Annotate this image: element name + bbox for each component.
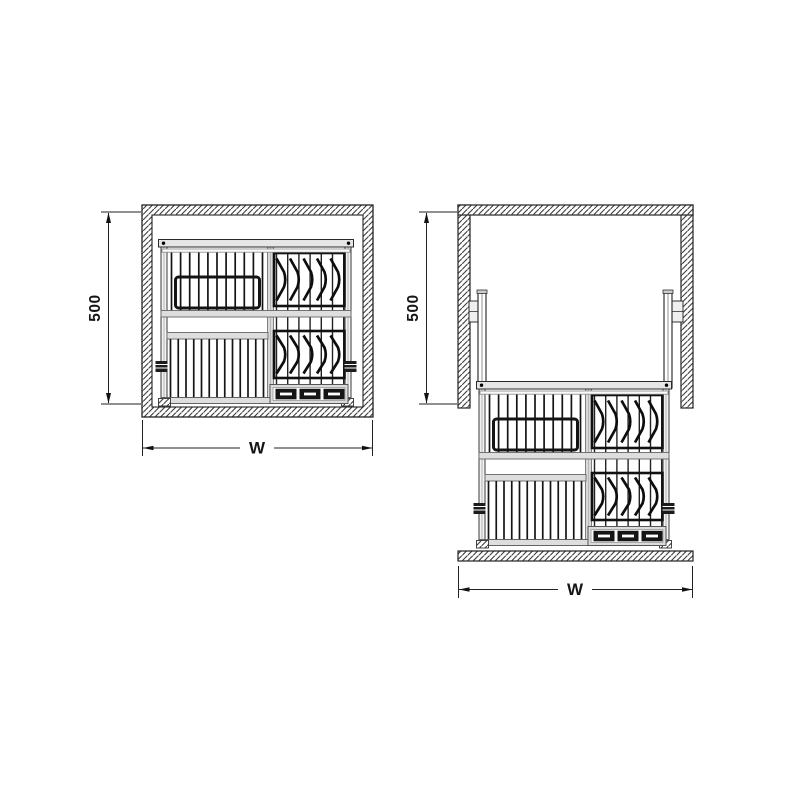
arrowhead-left — [143, 446, 154, 451]
arrowhead-down — [424, 393, 429, 404]
arrowhead-up — [106, 213, 111, 224]
view-closed-position: 500 W — [87, 205, 373, 458]
base-shelf-hatched — [458, 551, 693, 561]
arm-right-cap — [663, 290, 673, 294]
dimension-label-height-closed: 500 — [87, 294, 104, 321]
technical-drawing-page: 500 W — [0, 0, 800, 800]
arrowhead-down — [106, 393, 111, 404]
arm-left-cap — [477, 290, 487, 294]
dimension-label-width-closed: W — [249, 439, 266, 458]
dimension-width-open: W — [459, 566, 693, 599]
arrowhead-up — [424, 213, 429, 224]
cabinet-side-wall-left — [458, 205, 470, 408]
lift-arm-left — [469, 290, 487, 388]
view-open-position: 500 W — [405, 205, 693, 599]
cabinet-top-panel — [458, 205, 693, 215]
arrowhead-right — [362, 446, 373, 451]
dimension-height-closed: 500 — [87, 212, 141, 404]
dish-rack-lowered — [474, 382, 675, 549]
dimension-label-width-open: W — [567, 580, 584, 599]
lift-arm-right — [663, 290, 683, 388]
dimension-height-open: 500 — [405, 212, 457, 404]
cabinet-open — [458, 205, 693, 408]
arrowhead-right — [682, 587, 693, 592]
arrowhead-left — [459, 587, 470, 592]
dish-rack-diagram: 500 W — [0, 0, 800, 800]
dimension-label-height-open: 500 — [405, 294, 422, 321]
dimension-width-closed: W — [143, 420, 373, 458]
